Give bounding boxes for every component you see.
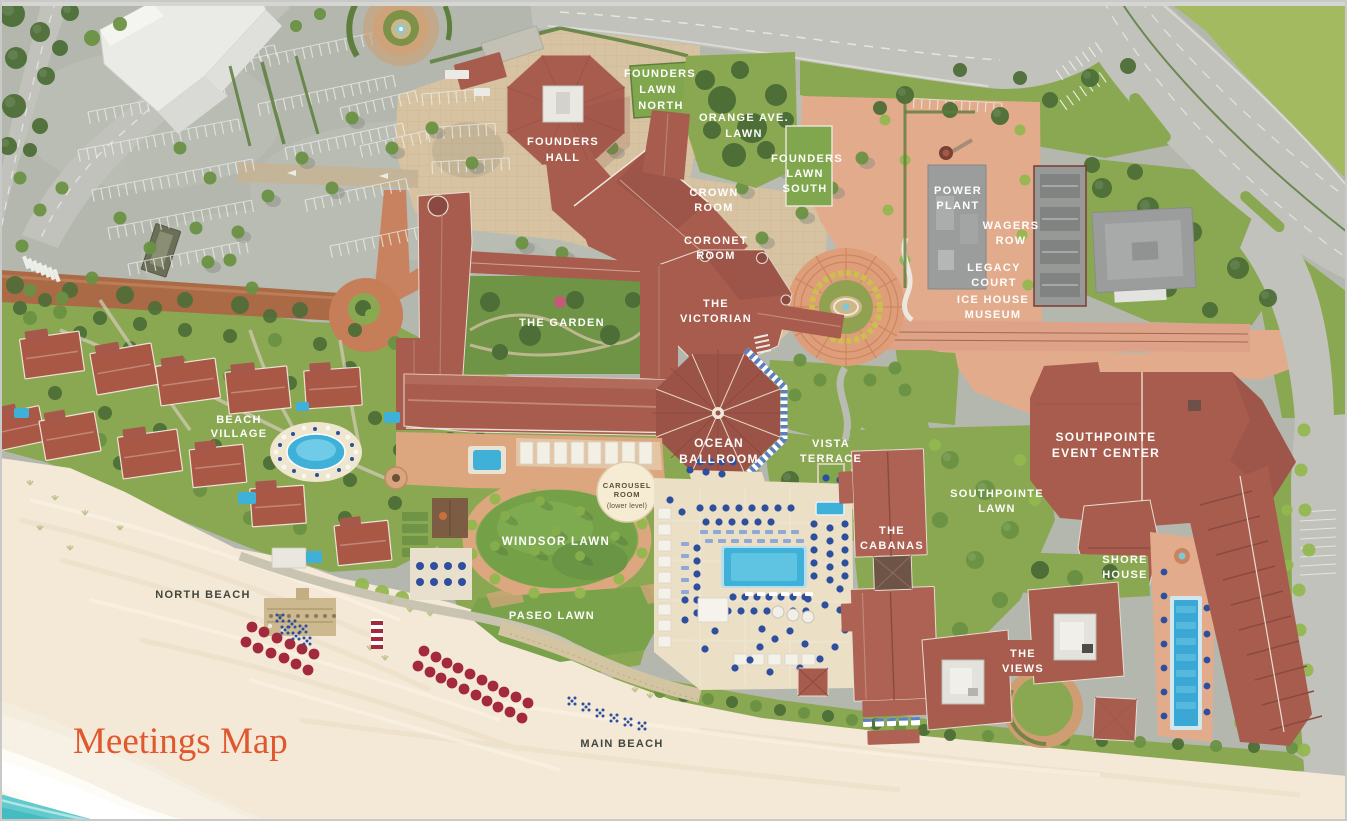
svg-text:ROW: ROW — [996, 235, 1027, 247]
svg-text:COURT: COURT — [971, 277, 1017, 289]
svg-text:HOUSE: HOUSE — [1102, 569, 1148, 581]
svg-text:THE: THE — [1010, 648, 1036, 660]
svg-text:CORONET: CORONET — [684, 235, 748, 247]
svg-text:LAWN: LAWN — [786, 168, 824, 180]
svg-text:ROOM: ROOM — [694, 202, 733, 214]
svg-text:LAWN: LAWN — [639, 84, 677, 96]
svg-text:PASEO LAWN: PASEO LAWN — [509, 610, 595, 622]
svg-text:VISTA: VISTA — [812, 438, 850, 450]
svg-text:CABANAS: CABANAS — [860, 540, 924, 552]
svg-text:PLANT: PLANT — [936, 200, 979, 212]
svg-text:BEACH: BEACH — [216, 414, 262, 426]
svg-text:LEGACY: LEGACY — [967, 262, 1021, 274]
svg-text:OCEAN: OCEAN — [694, 436, 744, 450]
svg-text:MUSEUM: MUSEUM — [965, 309, 1022, 321]
svg-text:VILLAGE: VILLAGE — [211, 428, 268, 440]
svg-text:ROOM: ROOM — [614, 490, 641, 499]
svg-text:EVENT CENTER: EVENT CENTER — [1052, 446, 1160, 460]
svg-text:FOUNDERS: FOUNDERS — [624, 68, 696, 80]
svg-text:SOUTH: SOUTH — [783, 183, 828, 195]
svg-text:WINDSOR LAWN: WINDSOR LAWN — [502, 536, 610, 548]
svg-text:SHORE: SHORE — [1102, 554, 1148, 566]
svg-text:ICE HOUSE: ICE HOUSE — [957, 294, 1029, 306]
svg-text:FOUNDERS: FOUNDERS — [527, 136, 599, 148]
svg-text:HALL: HALL — [546, 152, 581, 164]
svg-text:THE: THE — [703, 298, 729, 310]
svg-text:LAWN: LAWN — [978, 503, 1016, 515]
svg-text:CAROUSEL: CAROUSEL — [603, 481, 652, 490]
svg-text:BALLROOM: BALLROOM — [679, 452, 759, 466]
svg-text:MAIN BEACH: MAIN BEACH — [580, 738, 663, 750]
svg-text:THE: THE — [879, 525, 905, 537]
svg-text:ORANGE AVE.: ORANGE AVE. — [699, 112, 789, 124]
svg-text:ROOM: ROOM — [696, 250, 735, 262]
svg-text:VICTORIAN: VICTORIAN — [680, 313, 752, 325]
svg-text:FOUNDERS: FOUNDERS — [771, 153, 843, 165]
svg-text:WAGERS: WAGERS — [983, 220, 1040, 232]
svg-text:POWER: POWER — [934, 185, 982, 197]
svg-text:(lower level): (lower level) — [607, 503, 647, 510]
svg-text:THE GARDEN: THE GARDEN — [519, 317, 605, 329]
svg-text:VIEWS: VIEWS — [1002, 663, 1044, 675]
svg-text:CROWN: CROWN — [689, 187, 738, 199]
svg-text:TERRACE: TERRACE — [800, 453, 862, 465]
svg-text:SOUTHPOINTE: SOUTHPOINTE — [950, 488, 1044, 500]
svg-text:LAWN: LAWN — [725, 128, 763, 140]
svg-text:SOUTHPOINTE: SOUTHPOINTE — [1056, 430, 1157, 444]
svg-text:NORTH: NORTH — [638, 100, 684, 112]
svg-text:NORTH BEACH: NORTH BEACH — [155, 589, 251, 601]
svg-text:Meetings Map: Meetings Map — [73, 721, 288, 762]
